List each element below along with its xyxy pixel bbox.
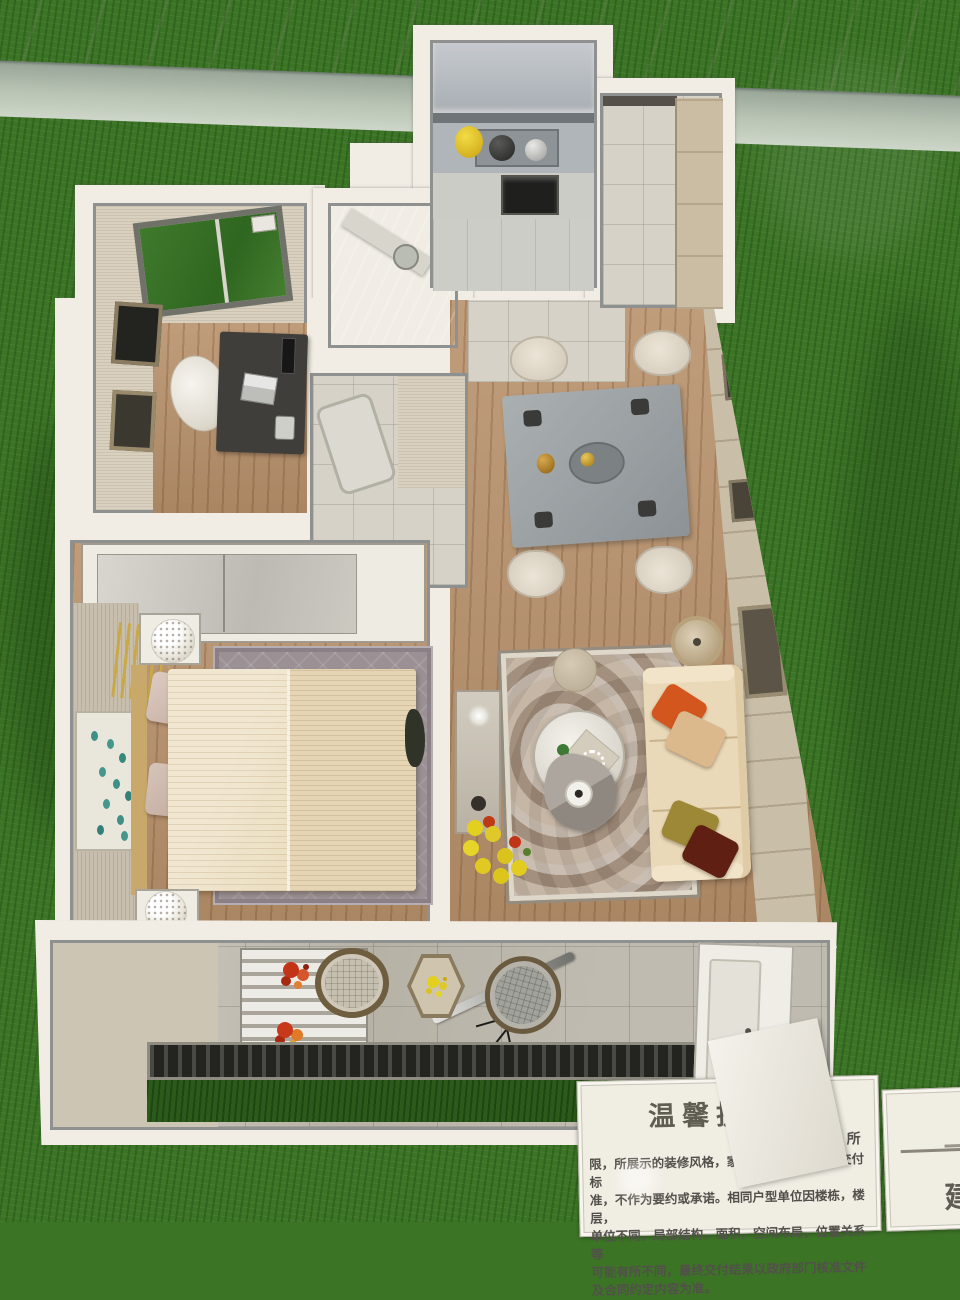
yellow-flower-decor — [427, 976, 439, 988]
side-table — [671, 616, 723, 668]
oven — [501, 175, 559, 215]
serving-tray — [567, 440, 626, 486]
cooking-pot — [489, 135, 515, 161]
wardrobe-divider — [223, 554, 225, 632]
bathroom-sink — [393, 244, 419, 270]
notice-sign-corner-fragment: 所 — [846, 1128, 860, 1148]
yellow-pepper — [455, 126, 483, 158]
study-room — [93, 203, 307, 513]
shower-partition — [341, 208, 433, 276]
red-flower-pot — [283, 962, 299, 978]
laptop — [240, 372, 278, 405]
folded-duvet — [287, 669, 416, 891]
flower-arrangement — [467, 820, 483, 836]
sofa — [642, 664, 751, 882]
kitchen-backsplash — [433, 113, 594, 123]
drainage-grate — [147, 1042, 707, 1080]
window-mullion — [215, 219, 229, 303]
place-setting — [523, 410, 542, 427]
kettle — [525, 139, 547, 161]
place-setting — [534, 511, 553, 528]
entry-hall — [600, 93, 722, 308]
coffee-cup — [574, 789, 584, 799]
round-stool — [553, 648, 597, 692]
teardrop-art-panel — [75, 711, 135, 851]
rattan-chair — [315, 948, 389, 1018]
white-flower-decor — [471, 708, 487, 724]
chair-cushion — [325, 958, 379, 1008]
study-window — [133, 205, 294, 319]
bed-headboard — [131, 665, 147, 895]
teardrop-beads — [91, 731, 98, 741]
tv-console — [455, 690, 501, 834]
side-card: 建 — [882, 1086, 960, 1231]
dining-table — [502, 384, 690, 548]
sphere-table-lamp — [151, 619, 195, 663]
bathtub — [314, 391, 398, 496]
gold-decor — [536, 453, 555, 474]
master-bedroom — [70, 540, 430, 935]
entry-door-gap — [603, 96, 677, 106]
entry-cabinet — [675, 98, 723, 309]
desk-monitor — [281, 338, 296, 374]
dining-chair — [507, 550, 565, 598]
place-setting — [638, 500, 657, 517]
side-table-center — [693, 638, 701, 646]
dark-bowl-decor — [471, 796, 486, 811]
wall-art-frame — [109, 390, 156, 452]
coffee-cup-tray — [562, 777, 596, 811]
red-flower-pot — [277, 1022, 293, 1038]
dining-chair — [510, 336, 568, 382]
notice-line: 单位不同，局部结构，面积，空间布局，位置关系等 — [590, 1222, 875, 1264]
wall-art-frame — [111, 301, 163, 366]
desk-lamp — [274, 415, 295, 440]
chair-cushion — [488, 959, 558, 1030]
side-card-character: 建 — [943, 1172, 960, 1217]
dining-chair — [635, 546, 693, 594]
side-card-divider-line — [901, 1148, 960, 1153]
sofa-armrest — [642, 664, 735, 684]
study-desk — [216, 332, 308, 455]
kitchen-floor — [433, 219, 594, 291]
dining-chair — [633, 330, 691, 376]
window-vent — [251, 214, 277, 233]
kitchen — [430, 40, 597, 288]
place-setting — [630, 398, 649, 415]
bathroom-wall-texture — [398, 376, 465, 488]
photo-miniature-apartment-model: { "scene": { "description": "Top-down ph… — [0, 0, 960, 1222]
kitchen-upper-cabinets — [433, 43, 594, 113]
